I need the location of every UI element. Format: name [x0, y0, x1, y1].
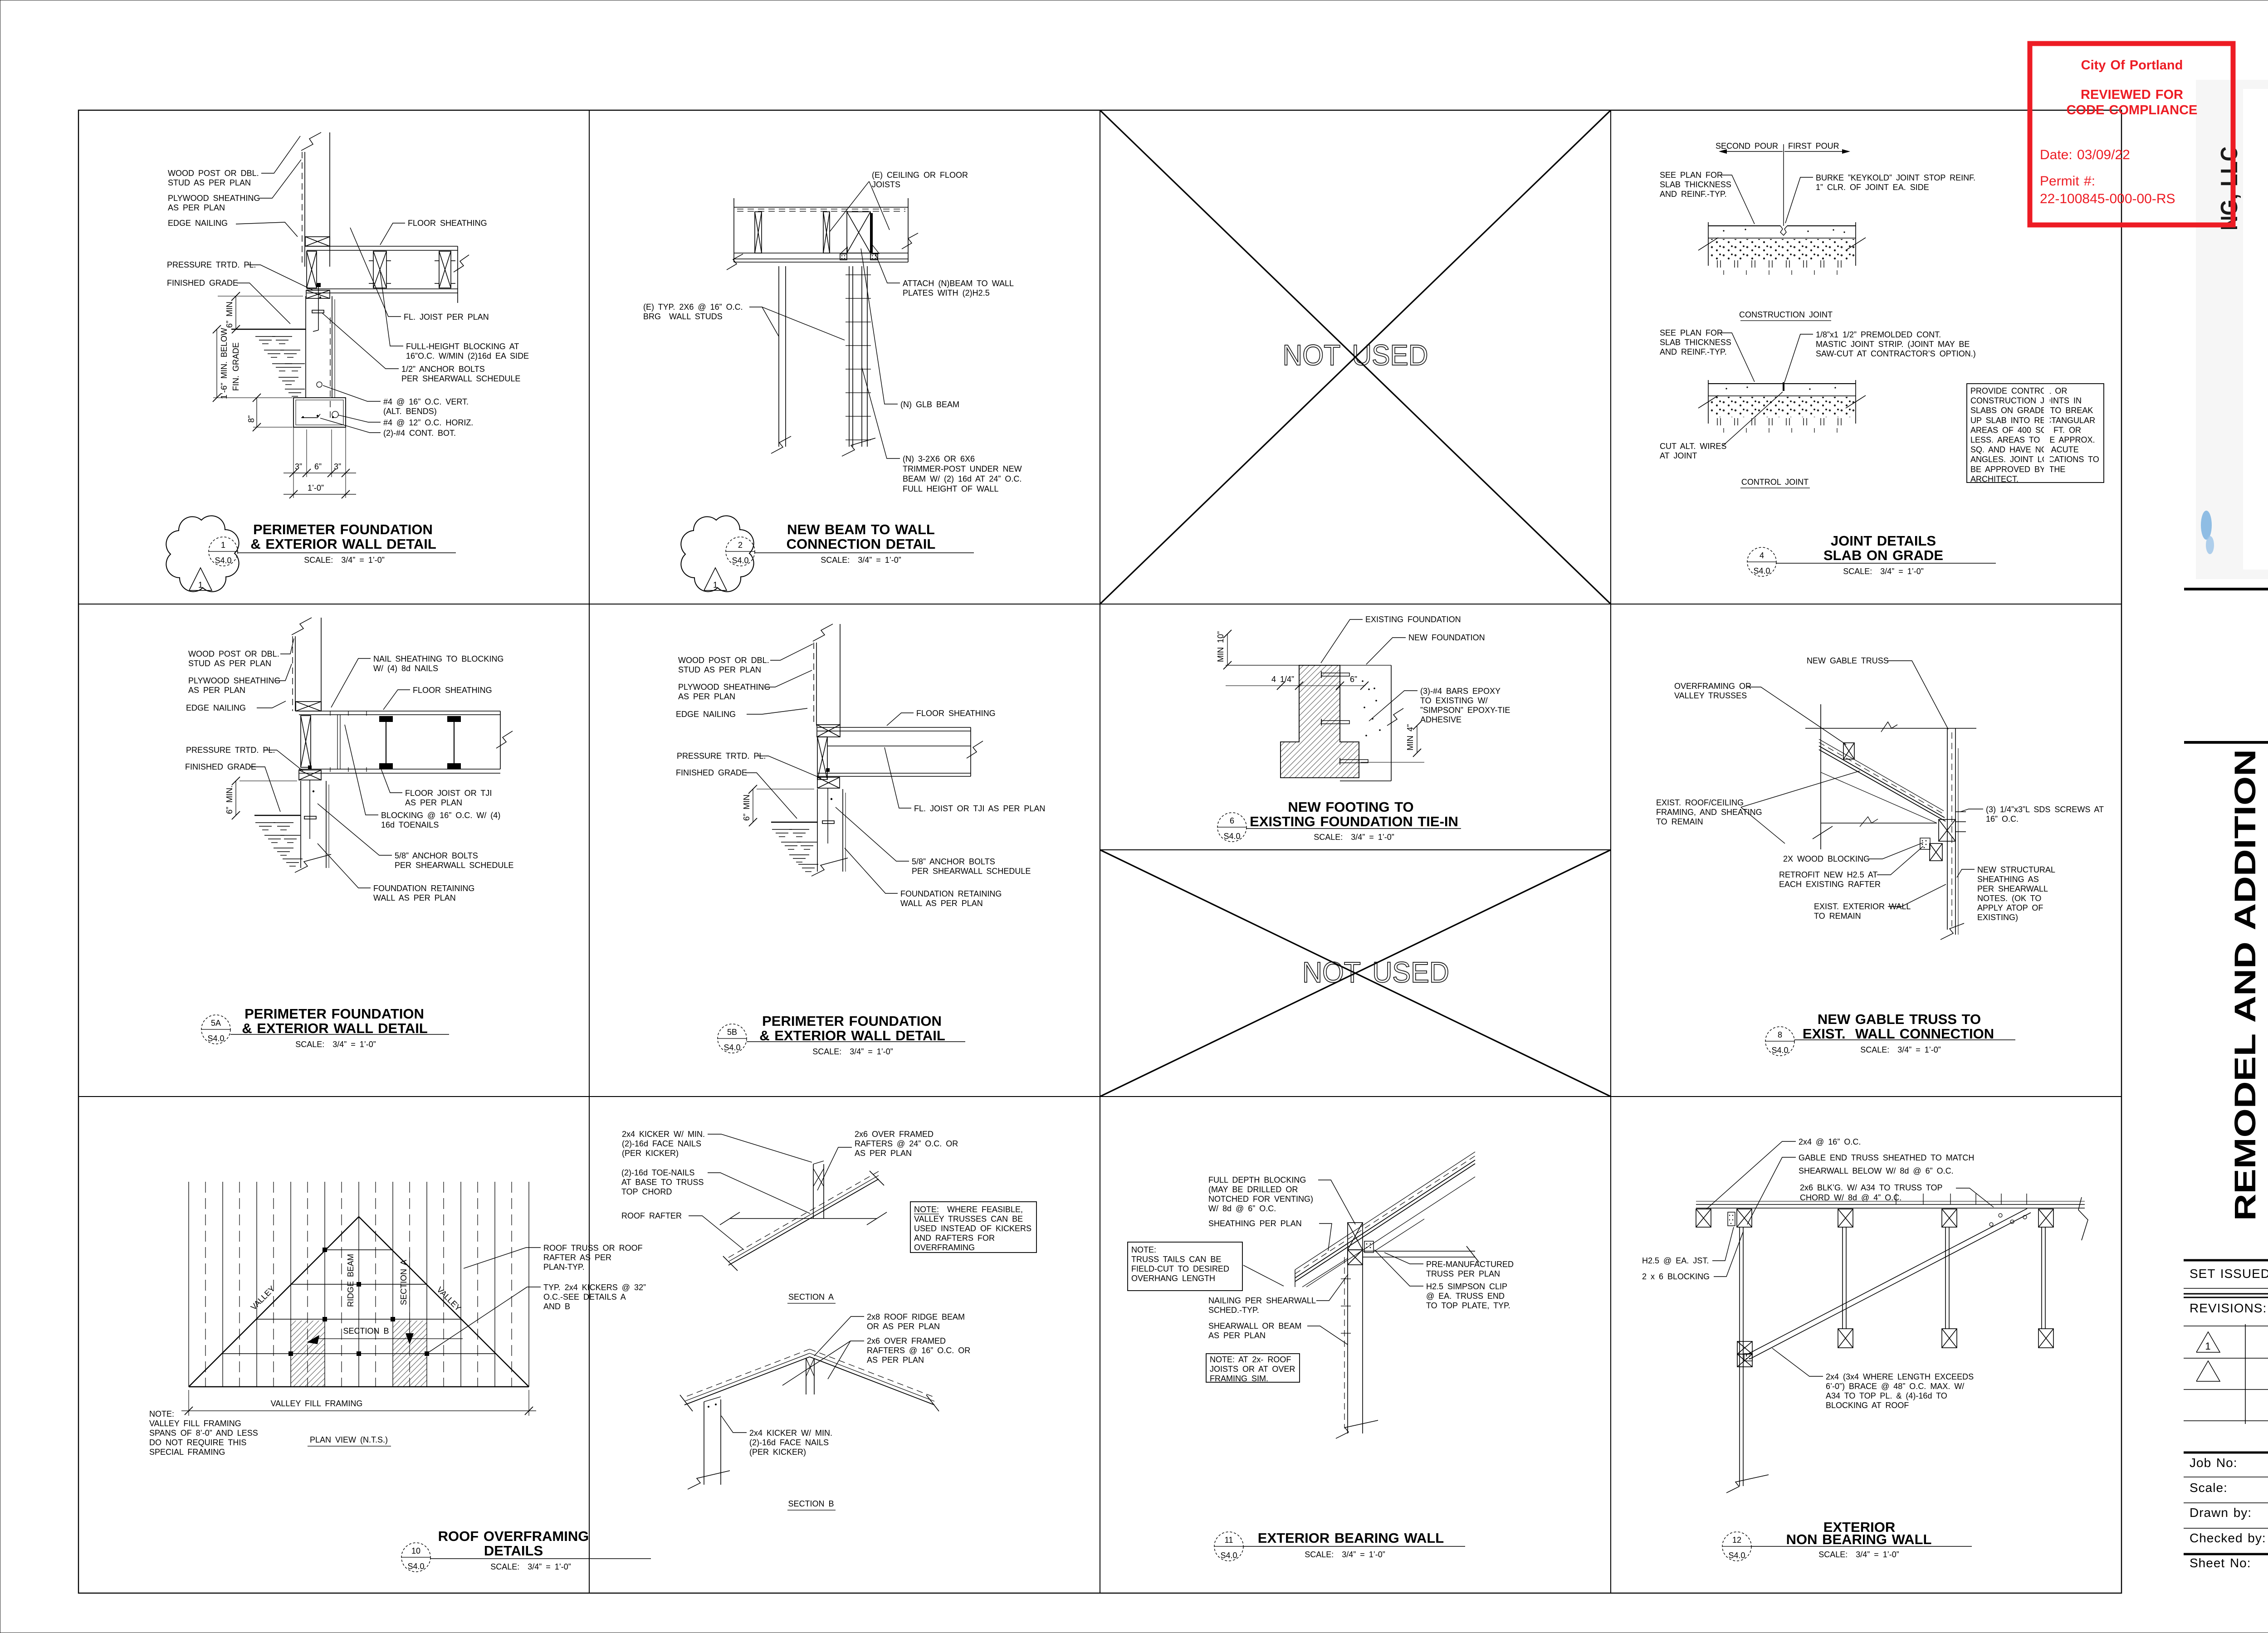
- svg-text:1: 1: [198, 580, 203, 590]
- svg-text:3”: 3”: [334, 462, 341, 471]
- svg-text:& EXTERIOR WALL DETAIL: & EXTERIOR WALL DETAIL: [242, 1020, 428, 1036]
- svg-text:AS PER PLAN: AS PER PLAN: [168, 203, 225, 212]
- svg-text:8”: 8”: [247, 415, 256, 423]
- svg-text:MIN 4”: MIN 4”: [1406, 724, 1415, 751]
- svg-text:NOT USED: NOT USED: [1283, 339, 1428, 371]
- svg-text:STUD AS PER PLAN: STUD AS PER PLAN: [168, 178, 251, 187]
- svg-text:5B: 5B: [727, 1028, 737, 1037]
- svg-text:DETAILS: DETAILS: [484, 1543, 543, 1559]
- svg-text:S4.0: S4.0: [723, 1043, 740, 1052]
- svg-text:ATTACH (N)BEAM TO WALL: ATTACH (N)BEAM TO WALL: [903, 279, 1014, 288]
- svg-text:FINISHED GRADE: FINISHED GRADE: [167, 278, 238, 288]
- svg-text:SHEATHING PER PLAN: SHEATHING PER PLAN: [1208, 1219, 1302, 1228]
- svg-text:(ALT. BENDS): (ALT. BENDS): [383, 407, 437, 416]
- svg-text:PRESSURE TRTD. PL.: PRESSURE TRTD. PL.: [186, 746, 275, 755]
- svg-text:FRAMING SIM.: FRAMING SIM.: [1210, 1374, 1268, 1383]
- svg-text:6” MIN.: 6” MIN.: [225, 785, 234, 814]
- svg-text:1: 1: [713, 580, 718, 590]
- svg-text:PER SHEARWALL SCHEDULE: PER SHEARWALL SCHEDULE: [401, 374, 520, 383]
- svg-text:BURKE ”KEYKOLD” JOINT STOP REI: BURKE ”KEYKOLD” JOINT STOP REINF.: [1816, 173, 1975, 182]
- svg-text:SPECIAL FRAMING: SPECIAL FRAMING: [149, 1448, 225, 1457]
- svg-text:Drawn by:: Drawn by:: [2190, 1506, 2252, 1520]
- svg-text:S4.0: S4.0: [1220, 1551, 1237, 1560]
- svg-text:CONNECTION DETAIL: CONNECTION DETAIL: [787, 536, 936, 552]
- svg-text:ROOF RAFTER: ROOF RAFTER: [621, 1211, 682, 1220]
- svg-text:2x4 @ 16” O.C.: 2x4 @ 16” O.C.: [1799, 1137, 1861, 1146]
- svg-text:Checked by:: Checked by:: [2190, 1531, 2266, 1545]
- svg-text:VALLEY FILL FRAMING: VALLEY FILL FRAMING: [271, 1399, 363, 1408]
- svg-text:PLYWOOD SHEATHING: PLYWOOD SHEATHING: [168, 194, 260, 203]
- svg-text:ARCHITECT.: ARCHITECT.: [1970, 474, 2019, 483]
- svg-text:”SIMPSON” EPOXY-TIE: ”SIMPSON” EPOXY-TIE: [1420, 706, 1510, 715]
- svg-text:1: 1: [221, 541, 225, 550]
- svg-text:2x6 OVER FRAMED: 2x6 OVER FRAMED: [855, 1130, 934, 1139]
- svg-text:S4.0: S4.0: [732, 556, 748, 565]
- svg-text:PRESSURE TRTD. PL.: PRESSURE TRTD. PL.: [677, 751, 766, 760]
- svg-text:TRUSS TAILS CAN BE: TRUSS TAILS CAN BE: [1131, 1255, 1221, 1264]
- svg-text:(2)-#4 CONT. BOT.: (2)-#4 CONT. BOT.: [383, 429, 456, 438]
- svg-text:BLOCKING @ 16” O.C. W/ (4): BLOCKING @ 16” O.C. W/ (4): [381, 811, 500, 820]
- svg-text:WALL AS PER PLAN: WALL AS PER PLAN: [900, 899, 983, 908]
- svg-text:SCALE: 3/4” = 1’-0”: SCALE: 3/4” = 1’-0”: [1314, 833, 1394, 842]
- svg-text:AS PER PLAN: AS PER PLAN: [188, 686, 245, 695]
- svg-text:#4 @ 12” O.C. HORIZ.: #4 @ 12” O.C. HORIZ.: [383, 418, 473, 427]
- svg-text:AS PER PLAN: AS PER PLAN: [1208, 1331, 1266, 1340]
- svg-text:VALLEY TRUSSES: VALLEY TRUSSES: [1674, 691, 1747, 700]
- svg-text:JOISTS: JOISTS: [872, 180, 900, 189]
- svg-text:SHEARWALL OR BEAM: SHEARWALL OR BEAM: [1208, 1321, 1301, 1331]
- svg-text:16” O.C.: 16” O.C.: [1986, 814, 2019, 824]
- svg-text:S4.0: S4.0: [1753, 566, 1770, 575]
- svg-text:RAFTERS @ 24” O.C. OR: RAFTERS @ 24” O.C. OR: [855, 1139, 958, 1148]
- svg-text:WALL AS PER PLAN: WALL AS PER PLAN: [373, 893, 456, 902]
- svg-text:TO REMAIN: TO REMAIN: [1656, 817, 1703, 826]
- svg-text:SCALE: 3/4” = 1’-0”: SCALE: 3/4” = 1’-0”: [821, 556, 901, 565]
- svg-text:NOTE:: NOTE:: [149, 1409, 174, 1419]
- svg-text:RAFTER AS PER: RAFTER AS PER: [543, 1253, 611, 1262]
- svg-text:5/8” ANCHOR BOLTS: 5/8” ANCHOR BOLTS: [395, 851, 478, 860]
- svg-text:ADHESIVE: ADHESIVE: [1420, 715, 1461, 724]
- svg-text:(3) 1/4”x3”L SDS SCREWS AT: (3) 1/4”x3”L SDS SCREWS AT: [1986, 805, 2104, 814]
- svg-text:1/2” ANCHOR BOLTS: 1/2” ANCHOR BOLTS: [401, 365, 485, 374]
- svg-text:ROOF OVERFRAMING: ROOF OVERFRAMING: [438, 1528, 589, 1544]
- svg-text:NEW BEAM TO WALL: NEW BEAM TO WALL: [787, 522, 935, 537]
- svg-text:6”: 6”: [1350, 675, 1357, 684]
- svg-text:EXIST. ROOF/CEILING: EXIST. ROOF/CEILING: [1656, 798, 1744, 807]
- svg-text:SCALE: 3/4” = 1’-0”: SCALE: 3/4” = 1’-0”: [304, 556, 385, 565]
- svg-text:BEAM W/ (2) 16d AT 24” O.C.: BEAM W/ (2) 16d AT 24” O.C.: [903, 474, 1022, 483]
- svg-text:PERIMETER FOUNDATION: PERIMETER FOUNDATION: [762, 1013, 942, 1029]
- svg-text:S4.0: S4.0: [407, 1562, 424, 1571]
- svg-text:DO NOT REQUIRE THIS: DO NOT REQUIRE THIS: [149, 1438, 246, 1447]
- svg-text:2x8 ROOF RIDGE BEAM: 2x8 ROOF RIDGE BEAM: [867, 1312, 965, 1321]
- svg-text:SECTION A: SECTION A: [399, 1260, 408, 1305]
- svg-text:FIN. GRADE: FIN. GRADE: [231, 342, 240, 391]
- svg-text:S4.0: S4.0: [207, 1034, 224, 1043]
- svg-text:FOUNDATION RETAINING: FOUNDATION RETAINING: [373, 884, 474, 893]
- svg-text:BRG WALL STUDS: BRG WALL STUDS: [643, 312, 723, 321]
- svg-text:APPLY ATOP OF: APPLY ATOP OF: [1977, 903, 2043, 912]
- svg-text:H2.5 @ EA. JST.: H2.5 @ EA. JST.: [1642, 1256, 1709, 1265]
- svg-text:8: 8: [1778, 1030, 1782, 1039]
- svg-text:WOOD POST OR DBL.: WOOD POST OR DBL.: [188, 649, 279, 658]
- svg-text:BLOCKING AT ROOF: BLOCKING AT ROOF: [1826, 1401, 1909, 1410]
- svg-text:AREAS OF 400 SQ. FT. OR: AREAS OF 400 SQ. FT. OR: [1970, 425, 2081, 434]
- svg-text:SLABS ON GRADE TO BREAK: SLABS ON GRADE TO BREAK: [1970, 406, 2093, 415]
- svg-text:JOISTS OR AT OVER: JOISTS OR AT OVER: [1210, 1365, 1295, 1374]
- svg-text:@ EA. TRUSS END: @ EA. TRUSS END: [1426, 1292, 1505, 1301]
- svg-text:FULL-HEIGHT BLOCKING AT: FULL-HEIGHT BLOCKING AT: [406, 342, 519, 351]
- svg-text:S4.0: S4.0: [215, 556, 231, 565]
- svg-text:PLAN-TYP.: PLAN-TYP.: [543, 1263, 585, 1272]
- svg-text:EXISTING FOUNDATION TIE-IN: EXISTING FOUNDATION TIE-IN: [1250, 814, 1458, 829]
- svg-text:1/8”x1 1/2” PREMOLDED CONT.: 1/8”x1 1/2” PREMOLDED CONT.: [1816, 330, 1941, 339]
- svg-text:VALLEY FILL FRAMING: VALLEY FILL FRAMING: [149, 1419, 241, 1428]
- svg-text:2x4 KICKER W/ MIN.: 2x4 KICKER W/ MIN.: [749, 1428, 832, 1438]
- svg-text:NON BEARING WALL: NON BEARING WALL: [1786, 1531, 1932, 1547]
- svg-text:AND B: AND B: [543, 1302, 570, 1311]
- svg-text:NOTE:: NOTE:: [1131, 1245, 1156, 1254]
- svg-text:NOTE: WHERE FEASIBLE,: NOTE: WHERE FEASIBLE,: [914, 1205, 1023, 1214]
- svg-text:(3)-#4 BARS EPOXY: (3)-#4 BARS EPOXY: [1420, 687, 1501, 696]
- svg-text:NOTCHED FOR VENTING): NOTCHED FOR VENTING): [1208, 1194, 1313, 1204]
- svg-text:2x6 OVER FRAMED: 2x6 OVER FRAMED: [867, 1336, 946, 1345]
- svg-text:1’-6” MIN. BELOW: 1’-6” MIN. BELOW: [220, 328, 229, 399]
- svg-text:SCALE: 3/4” = 1’-0”: SCALE: 3/4” = 1’-0”: [1305, 1550, 1385, 1559]
- svg-text:NG, LLC: NG, LLC: [2216, 146, 2243, 230]
- svg-text:(2)-16d FACE NAILS: (2)-16d FACE NAILS: [622, 1139, 701, 1148]
- svg-text:NOTES. (OK TO: NOTES. (OK TO: [1977, 894, 2041, 903]
- svg-text:REVISIONS:: REVISIONS:: [2190, 1301, 2267, 1315]
- svg-text:EXISTING): EXISTING): [1977, 913, 2018, 922]
- svg-text:FOUNDATION RETAINING: FOUNDATION RETAINING: [900, 889, 1002, 898]
- svg-text:AT BASE TO TRUSS: AT BASE TO TRUSS: [621, 1178, 704, 1187]
- svg-text:Sheet No:: Sheet No:: [2190, 1556, 2251, 1570]
- svg-text:EDGE NAILING: EDGE NAILING: [676, 710, 736, 719]
- svg-text:PER SHEARWALL: PER SHEARWALL: [1977, 884, 2048, 893]
- svg-text:RAFTERS @ 16” O.C. OR: RAFTERS @ 16” O.C. OR: [867, 1346, 970, 1355]
- svg-text:SCALE: 3/4” = 1’-0”: SCALE: 3/4” = 1’-0”: [812, 1047, 893, 1056]
- svg-text:(E) TYP. 2X6 @ 16” O.C.: (E) TYP. 2X6 @ 16” O.C.: [643, 302, 743, 312]
- svg-text:WOOD POST OR DBL.: WOOD POST OR DBL.: [678, 656, 769, 665]
- svg-text:SECOND POUR: SECOND POUR: [1716, 141, 1778, 151]
- svg-text:FIRST POUR: FIRST POUR: [1788, 141, 1839, 151]
- svg-text:SLAB THICKNESS: SLAB THICKNESS: [1660, 338, 1731, 347]
- svg-text:STUD AS PER PLAN: STUD AS PER PLAN: [188, 659, 271, 668]
- svg-text:TO REMAIN: TO REMAIN: [1814, 912, 1861, 921]
- svg-text:6” MIN.: 6” MIN.: [225, 299, 234, 328]
- svg-text:FL. JOIST OR TJI AS PER PLAN: FL. JOIST OR TJI AS PER PLAN: [914, 804, 1045, 813]
- svg-text:SCALE: 3/4” = 1’-0”: SCALE: 3/4” = 1’-0”: [295, 1040, 376, 1049]
- svg-text:PER SHEARWALL SCHEDULE: PER SHEARWALL SCHEDULE: [912, 867, 1031, 876]
- svg-text:City Of Portland: City Of Portland: [2081, 58, 2183, 73]
- svg-text:FINISHED GRADE: FINISHED GRADE: [185, 762, 256, 771]
- svg-text:2x4 KICKER W/ MIN.: 2x4 KICKER W/ MIN.: [622, 1130, 705, 1139]
- svg-text:CODE COMPLIANCE: CODE COMPLIANCE: [2067, 103, 2198, 117]
- svg-text:VALLEY: VALLEY: [435, 1285, 463, 1313]
- svg-text:(2)-16d FACE NAILS: (2)-16d FACE NAILS: [749, 1438, 829, 1447]
- svg-text:EACH EXISTING RAFTER: EACH EXISTING RAFTER: [1779, 880, 1881, 889]
- svg-text:NEW GABLE TRUSS: NEW GABLE TRUSS: [1807, 656, 1889, 665]
- svg-text:FL. JOIST PER PLAN: FL. JOIST PER PLAN: [404, 312, 489, 322]
- svg-text:AS PER PLAN: AS PER PLAN: [867, 1355, 924, 1365]
- svg-text:WOOD POST OR DBL.: WOOD POST OR DBL.: [168, 169, 259, 178]
- svg-text:PRE-MANUFACTURED: PRE-MANUFACTURED: [1426, 1260, 1514, 1269]
- svg-text:REVIEWED FOR: REVIEWED FOR: [2081, 88, 2183, 102]
- svg-text:W/ (4) 8d NAILS: W/ (4) 8d NAILS: [373, 664, 438, 673]
- svg-text:(2)-16d TOE-NAILS: (2)-16d TOE-NAILS: [621, 1168, 694, 1177]
- svg-text:PLYWOOD SHEATHING: PLYWOOD SHEATHING: [188, 676, 280, 685]
- svg-text:AS PER PLAN: AS PER PLAN: [855, 1149, 912, 1158]
- svg-text:AT ELFERS RESIDENCE: AT ELFERS RESIDENCE: [2265, 749, 2268, 1221]
- svg-text:SECTION A: SECTION A: [788, 1292, 834, 1302]
- svg-text:6” MIN.: 6” MIN.: [742, 792, 751, 821]
- svg-text:EXIST. WALL CONNECTION: EXIST. WALL CONNECTION: [1803, 1026, 1994, 1042]
- svg-text:PRESSURE TRTD. PL.: PRESSURE TRTD. PL.: [167, 260, 256, 269]
- svg-text:SPANS OF 8’-0” AND LESS: SPANS OF 8’-0” AND LESS: [149, 1428, 258, 1438]
- svg-text:EXISTING FOUNDATION: EXISTING FOUNDATION: [1365, 615, 1461, 624]
- svg-text:TO TOP PLATE, TYP.: TO TOP PLATE, TYP.: [1426, 1301, 1510, 1310]
- svg-text:REMODEL AND ADDITION: REMODEL AND ADDITION: [2228, 749, 2262, 1221]
- svg-text:CONSTRUCTION JOINT: CONSTRUCTION JOINT: [1739, 310, 1833, 319]
- svg-text:ROOF TRUSS OR ROOF: ROOF TRUSS OR ROOF: [543, 1243, 643, 1253]
- svg-text:& EXTERIOR WALL DETAIL: & EXTERIOR WALL DETAIL: [250, 536, 436, 552]
- svg-text:PROVIDE CONTROL OR: PROVIDE CONTROL OR: [1970, 386, 2067, 395]
- svg-text:FLOOR SHEATHING: FLOOR SHEATHING: [408, 219, 487, 228]
- svg-text:SEE PLAN FOR: SEE PLAN FOR: [1660, 171, 1723, 180]
- svg-text:SCALE: 3/4” = 1’-0”: SCALE: 3/4” = 1’-0”: [1843, 567, 1924, 576]
- svg-text:FULL HEIGHT OF WALL: FULL HEIGHT OF WALL: [903, 484, 998, 493]
- svg-text:Permit #:: Permit #:: [2040, 174, 2095, 189]
- svg-text:SEE PLAN FOR: SEE PLAN FOR: [1660, 328, 1723, 337]
- svg-text:5/8” ANCHOR BOLTS: 5/8” ANCHOR BOLTS: [912, 857, 995, 866]
- svg-text:SECTION B: SECTION B: [788, 1499, 834, 1508]
- svg-text:SECTION B: SECTION B: [343, 1326, 389, 1336]
- svg-text:CUT ALT. WIRES: CUT ALT. WIRES: [1660, 442, 1726, 451]
- svg-text:2x6 BLK’G. W/ A34 TO TRUSS TOP: 2x6 BLK’G. W/ A34 TO TRUSS TOP: [1800, 1183, 1942, 1192]
- svg-text:#4 @ 16” O.C. VERT.: #4 @ 16” O.C. VERT.: [383, 397, 469, 406]
- svg-text:SAW-CUT AT CONTRACTOR’S OPTION: SAW-CUT AT CONTRACTOR’S OPTION.): [1816, 349, 1976, 358]
- svg-text:S4.0: S4.0: [1223, 832, 1240, 841]
- svg-text:NOT USED: NOT USED: [1302, 956, 1449, 989]
- svg-text:SET ISSUED:: SET ISSUED:: [2190, 1267, 2268, 1281]
- svg-text:6”: 6”: [314, 462, 322, 471]
- svg-text:RIDGE BEAM: RIDGE BEAM: [346, 1254, 355, 1307]
- svg-text:USED INSTEAD OF KICKERS: USED INSTEAD OF KICKERS: [914, 1224, 1031, 1233]
- svg-text:Job No:: Job No:: [2190, 1456, 2238, 1470]
- svg-text:H2.5 SIMPSON CLIP: H2.5 SIMPSON CLIP: [1426, 1282, 1507, 1291]
- svg-text:CHORD W/ 8d @ 4” O.C.: CHORD W/ 8d @ 4” O.C.: [1800, 1193, 1901, 1202]
- svg-text:Scale:: Scale:: [2190, 1481, 2228, 1495]
- svg-text:TRUSS PER PLAN: TRUSS PER PLAN: [1426, 1269, 1500, 1278]
- svg-text:11: 11: [1225, 1536, 1233, 1545]
- svg-text:PLATES WITH (2)H2.5: PLATES WITH (2)H2.5: [903, 288, 990, 297]
- svg-text:(E) CEILING OR FLOOR: (E) CEILING OR FLOOR: [872, 171, 968, 180]
- svg-text:4: 4: [1760, 551, 1764, 560]
- svg-text:SCALE: 3/4” = 1’-0”: SCALE: 3/4” = 1’-0”: [1860, 1045, 1941, 1054]
- svg-text:SQ. AND HAVE NO ACUTE: SQ. AND HAVE NO ACUTE: [1970, 445, 2079, 454]
- svg-text:PERIMETER FOUNDATION: PERIMETER FOUNDATION: [244, 1006, 424, 1022]
- svg-text:2X WOOD BLOCKING: 2X WOOD BLOCKING: [1783, 854, 1870, 863]
- svg-text:NEW STRUCTURAL: NEW STRUCTURAL: [1977, 865, 2055, 874]
- svg-text:S4.0: S4.0: [1771, 1046, 1788, 1055]
- svg-text:SHEATHING AS: SHEATHING AS: [1977, 875, 2039, 884]
- svg-text:2 x 6 BLOCKING: 2 x 6 BLOCKING: [1642, 1272, 1710, 1281]
- svg-text:EDGE NAILING: EDGE NAILING: [168, 219, 228, 228]
- svg-text:MIN 10”: MIN 10”: [1216, 631, 1225, 662]
- svg-text:(N) GLB BEAM: (N) GLB BEAM: [900, 400, 959, 409]
- svg-text:NAILING PER SHEARWALL: NAILING PER SHEARWALL: [1208, 1296, 1316, 1305]
- svg-text:6: 6: [1230, 816, 1234, 825]
- svg-text:1: 1: [2205, 1341, 2211, 1352]
- svg-text:FIELD-CUT TO DESIRED: FIELD-CUT TO DESIRED: [1131, 1264, 1229, 1273]
- svg-text:W/ 8d @ 6” O.C.: W/ 8d @ 6” O.C.: [1208, 1204, 1276, 1213]
- svg-text:6’-0”) BRACE @ 48” O.C. MAX. W: 6’-0”) BRACE @ 48” O.C. MAX. W/: [1826, 1382, 1964, 1391]
- svg-text:(PER KICKER): (PER KICKER): [622, 1149, 679, 1158]
- svg-text:12: 12: [1732, 1536, 1741, 1545]
- svg-text:OVERHANG LENGTH: OVERHANG LENGTH: [1131, 1274, 1215, 1283]
- svg-text:JOINT DETAILS: JOINT DETAILS: [1831, 533, 1936, 549]
- svg-text:OVERFRAMING: OVERFRAMING: [914, 1243, 975, 1252]
- svg-text:UP SLAB INTO RECTANGULAR: UP SLAB INTO RECTANGULAR: [1970, 416, 2095, 425]
- svg-text:S4.0: S4.0: [1728, 1551, 1745, 1560]
- svg-text:FINISHED GRADE: FINISHED GRADE: [676, 768, 747, 777]
- svg-text:NOTE: AT 2x- ROOF: NOTE: AT 2x- ROOF: [1210, 1355, 1291, 1364]
- svg-text:AND RAFTERS FOR: AND RAFTERS FOR: [914, 1233, 995, 1243]
- svg-text:Date: 03/09/22: Date: 03/09/22: [2040, 147, 2130, 162]
- svg-text:4 1/4”: 4 1/4”: [1271, 675, 1294, 684]
- svg-text:PER SHEARWALL SCHEDULE: PER SHEARWALL SCHEDULE: [395, 861, 513, 870]
- svg-text:ANGLES. JOINT LOCATIONS TO: ANGLES. JOINT LOCATIONS TO: [1970, 455, 2099, 464]
- svg-text:FULL DEPTH BLOCKING: FULL DEPTH BLOCKING: [1208, 1175, 1306, 1185]
- svg-text:SLAB ON GRADE: SLAB ON GRADE: [1823, 547, 1943, 563]
- svg-text:5A: 5A: [211, 1019, 221, 1028]
- svg-text:1” CLR. OF JOINT EA. SIDE: 1” CLR. OF JOINT EA. SIDE: [1816, 183, 1929, 192]
- svg-text:3”: 3”: [295, 462, 302, 471]
- svg-text:TRIMMER-POST UNDER NEW: TRIMMER-POST UNDER NEW: [903, 464, 1022, 473]
- svg-text:2x4 (3x4 WHERE LENGTH EXCEEDS: 2x4 (3x4 WHERE LENGTH EXCEEDS: [1826, 1372, 1974, 1381]
- svg-text:PLAN VIEW (N.T.S.): PLAN VIEW (N.T.S.): [310, 1435, 388, 1444]
- svg-text:FLOOR SHEATHING: FLOOR SHEATHING: [413, 686, 492, 695]
- svg-text:(PER KICKER): (PER KICKER): [749, 1448, 806, 1457]
- svg-text:FLOOR SHEATHING: FLOOR SHEATHING: [916, 709, 996, 718]
- svg-text:SLAB THICKNESS: SLAB THICKNESS: [1660, 180, 1731, 189]
- svg-text:AND REINF.-TYP.: AND REINF.-TYP.: [1660, 347, 1727, 356]
- svg-text:OR AS PER PLAN: OR AS PER PLAN: [867, 1322, 940, 1331]
- svg-text:VALLEY TRUSSES CAN BE: VALLEY TRUSSES CAN BE: [914, 1214, 1023, 1224]
- svg-text:22-100845-000-00-RS: 22-100845-000-00-RS: [2040, 191, 2175, 206]
- svg-text:NEW FOOTING TO: NEW FOOTING TO: [1288, 799, 1413, 815]
- svg-text:16”O.C. W/MIN (2)16d EA SIDE: 16”O.C. W/MIN (2)16d EA SIDE: [406, 351, 529, 361]
- svg-text:O.C.-SEE DETAILS A: O.C.-SEE DETAILS A: [543, 1292, 626, 1302]
- svg-text:MASTIC JOINT STRIP. (JOINT MAY: MASTIC JOINT STRIP. (JOINT MAY BE: [1816, 340, 1970, 349]
- svg-text:AS PER PLAN: AS PER PLAN: [405, 798, 462, 807]
- svg-text:SCHED.-TYP.: SCHED.-TYP.: [1208, 1306, 1259, 1315]
- svg-text:RETROFIT NEW H2.5 AT: RETROFIT NEW H2.5 AT: [1779, 870, 1877, 879]
- svg-text:2: 2: [738, 541, 743, 550]
- svg-text:(N) 3-2X6 OR 6X6: (N) 3-2X6 OR 6X6: [903, 454, 975, 463]
- svg-text:NAIL SHEATHING TO BLOCKING: NAIL SHEATHING TO BLOCKING: [373, 654, 503, 663]
- svg-text:(MAY BE DRILLED OR: (MAY BE DRILLED OR: [1208, 1185, 1298, 1194]
- svg-text:FLOOR JOIST OR TJI: FLOOR JOIST OR TJI: [405, 789, 492, 798]
- svg-text:EDGE NAILING: EDGE NAILING: [186, 703, 246, 712]
- svg-text:PLYWOOD SHEATHING: PLYWOOD SHEATHING: [678, 682, 770, 692]
- svg-text:AT JOINT: AT JOINT: [1660, 451, 1697, 460]
- svg-text:PERIMETER FOUNDATION: PERIMETER FOUNDATION: [253, 522, 433, 537]
- svg-text:NEW GABLE TRUSS TO: NEW GABLE TRUSS TO: [1818, 1011, 1981, 1027]
- svg-text:SHEARWALL BELOW W/ 8d @ 6” O.C: SHEARWALL BELOW W/ 8d @ 6” O.C.: [1799, 1166, 1954, 1175]
- svg-text:VALLEY: VALLEY: [249, 1284, 277, 1312]
- svg-text:1’-0”: 1’-0”: [308, 483, 324, 492]
- svg-text:A34 TO TOP PL. & (4)-16d TO: A34 TO TOP PL. & (4)-16d TO: [1826, 1391, 1947, 1400]
- svg-text:TOP CHORD: TOP CHORD: [621, 1187, 672, 1196]
- svg-text:BE APPROVED BY THE: BE APPROVED BY THE: [1970, 465, 2065, 474]
- svg-text:GABLE END TRUSS SHEATHED TO MA: GABLE END TRUSS SHEATHED TO MATCH: [1799, 1153, 1974, 1162]
- svg-text:STUD AS PER PLAN: STUD AS PER PLAN: [678, 665, 761, 674]
- svg-text:AND REINF.-TYP.: AND REINF.-TYP.: [1660, 190, 1727, 199]
- svg-text:CONTROL JOINT: CONTROL JOINT: [1741, 478, 1809, 487]
- svg-text:10: 10: [411, 1546, 420, 1555]
- svg-text:OVERFRAMING OR: OVERFRAMING OR: [1674, 682, 1751, 691]
- svg-text:AS PER PLAN: AS PER PLAN: [678, 692, 735, 701]
- svg-text:SCALE: 3/4” = 1’-0”: SCALE: 3/4” = 1’-0”: [1818, 1550, 1899, 1559]
- svg-text:FRAMING, AND SHEATING: FRAMING, AND SHEATING: [1656, 808, 1762, 817]
- svg-text:CONSTRUCTION JOINTS IN: CONSTRUCTION JOINTS IN: [1970, 396, 2082, 405]
- svg-text:LESS. AREAS TO BE APPROX.: LESS. AREAS TO BE APPROX.: [1970, 435, 2095, 444]
- svg-text:TO EXISTING W/: TO EXISTING W/: [1420, 696, 1488, 705]
- svg-text:TYP. 2x4 KICKERS @ 32”: TYP. 2x4 KICKERS @ 32”: [543, 1283, 646, 1292]
- svg-text:16d TOENAILS: 16d TOENAILS: [381, 820, 439, 829]
- svg-text:& EXTERIOR WALL DETAIL: & EXTERIOR WALL DETAIL: [759, 1028, 945, 1043]
- svg-text:EXTERIOR BEARING WALL: EXTERIOR BEARING WALL: [1258, 1530, 1444, 1546]
- svg-text:SCALE: 3/4” = 1’-0”: SCALE: 3/4” = 1’-0”: [490, 1562, 571, 1571]
- svg-text:NEW FOUNDATION: NEW FOUNDATION: [1408, 633, 1485, 642]
